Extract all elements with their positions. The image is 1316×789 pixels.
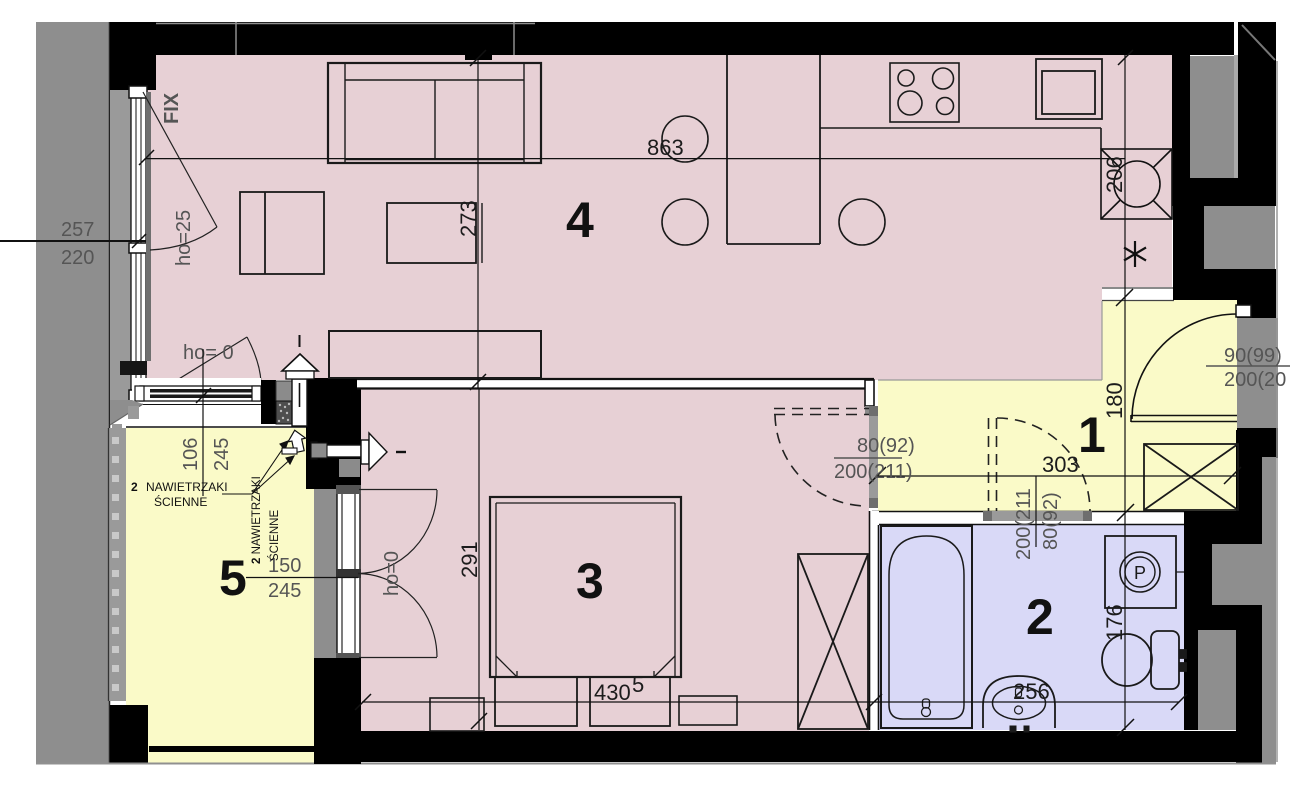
svg-text:ŚCIENNE: ŚCIENNE: [154, 494, 207, 509]
svg-text:257: 257: [61, 219, 94, 241]
svg-text:3: 3: [576, 553, 604, 609]
svg-text:ho= 0: ho= 0: [183, 342, 234, 364]
svg-text:2: 2: [1026, 589, 1054, 645]
svg-text:245: 245: [268, 580, 301, 602]
svg-text:200(20: 200(20: [1224, 369, 1286, 391]
svg-text:2 NAWIETRZAKI: 2 NAWIETRZAKI: [251, 476, 263, 564]
svg-text:863: 863: [647, 135, 684, 160]
svg-text:80(92): 80(92): [857, 435, 915, 457]
svg-text:176: 176: [1102, 604, 1127, 641]
svg-text:ho=0: ho=0: [381, 551, 403, 596]
svg-text:106: 106: [180, 438, 202, 471]
svg-text:2: 2: [131, 480, 138, 494]
svg-text:291: 291: [457, 541, 482, 578]
svg-text:200(211): 200(211): [834, 461, 913, 483]
svg-text:4: 4: [566, 192, 594, 248]
svg-text:5: 5: [219, 550, 247, 606]
svg-text:245: 245: [211, 438, 233, 471]
svg-text:90(99): 90(99): [1224, 345, 1282, 367]
svg-text:FIX: FIX: [161, 92, 183, 124]
svg-text:ŚCIENNE: ŚCIENNE: [268, 510, 281, 561]
svg-text:220: 220: [61, 247, 94, 269]
svg-text:P: P: [1134, 563, 1146, 583]
svg-text:ho=25: ho=25: [173, 210, 195, 266]
svg-text:1: 1: [1078, 407, 1106, 463]
svg-text:273: 273: [456, 200, 481, 237]
svg-text:200(211: 200(211: [1013, 488, 1035, 560]
svg-text:430: 430: [594, 680, 631, 705]
svg-text:5: 5: [632, 672, 644, 697]
svg-text:80(92): 80(92): [1040, 492, 1062, 550]
svg-text:303: 303: [1042, 452, 1079, 477]
svg-text:256: 256: [1013, 679, 1050, 704]
svg-text:206: 206: [1102, 156, 1127, 193]
svg-text:NAWIETRZAKI: NAWIETRZAKI: [146, 480, 228, 494]
